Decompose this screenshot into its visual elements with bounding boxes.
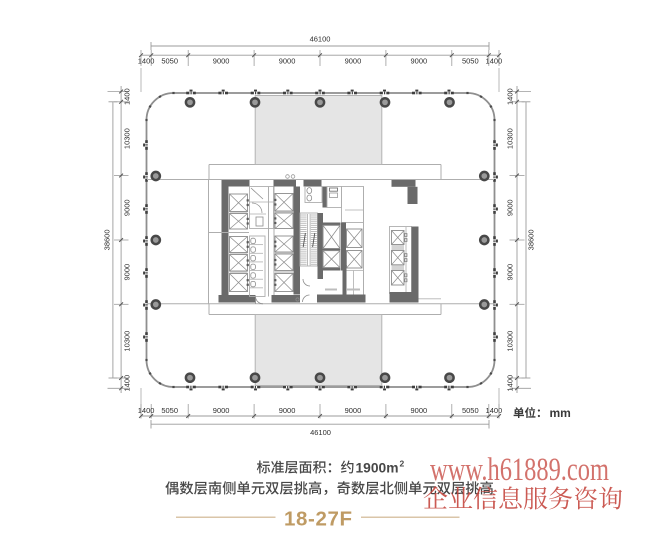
svg-text:9000: 9000 bbox=[213, 406, 230, 415]
svg-text:1400: 1400 bbox=[138, 57, 155, 66]
svg-text:1400: 1400 bbox=[486, 57, 503, 66]
svg-text:www.h61889.com: www.h61889.com bbox=[430, 452, 609, 488]
svg-text:9000: 9000 bbox=[345, 406, 362, 415]
svg-text:1400: 1400 bbox=[506, 375, 515, 392]
svg-text:1400: 1400 bbox=[486, 406, 503, 415]
svg-text:9000: 9000 bbox=[279, 406, 296, 415]
svg-text:2: 2 bbox=[400, 459, 405, 469]
svg-text:1400: 1400 bbox=[138, 406, 155, 415]
svg-text:38600: 38600 bbox=[527, 229, 536, 250]
svg-text:1400: 1400 bbox=[506, 88, 515, 105]
svg-text:10300: 10300 bbox=[123, 128, 132, 149]
svg-text:18-27F: 18-27F bbox=[284, 507, 353, 530]
svg-text:9000: 9000 bbox=[411, 406, 428, 415]
svg-text:5050: 5050 bbox=[462, 57, 479, 66]
svg-text:1400: 1400 bbox=[123, 375, 132, 392]
svg-text:9000: 9000 bbox=[506, 199, 515, 216]
svg-text:9000: 9000 bbox=[506, 264, 515, 281]
svg-text:9000: 9000 bbox=[411, 57, 428, 66]
svg-text:1400: 1400 bbox=[123, 88, 132, 105]
svg-text:46100: 46100 bbox=[310, 35, 331, 44]
svg-text:5050: 5050 bbox=[462, 406, 479, 415]
svg-text:10300: 10300 bbox=[506, 128, 515, 149]
svg-text:10300: 10300 bbox=[123, 331, 132, 352]
svg-text:1900m: 1900m bbox=[356, 460, 399, 475]
svg-text:9000: 9000 bbox=[345, 57, 362, 66]
svg-text:9000: 9000 bbox=[123, 199, 132, 216]
svg-text:5050: 5050 bbox=[161, 406, 178, 415]
svg-text:38600: 38600 bbox=[103, 229, 112, 250]
svg-text:9000: 9000 bbox=[213, 57, 230, 66]
svg-text:9000: 9000 bbox=[279, 57, 296, 66]
svg-text:46100: 46100 bbox=[310, 428, 331, 437]
svg-text:10300: 10300 bbox=[506, 331, 515, 352]
svg-text:mm: mm bbox=[550, 406, 571, 420]
svg-text:5050: 5050 bbox=[161, 57, 178, 66]
svg-text:9000: 9000 bbox=[123, 264, 132, 281]
